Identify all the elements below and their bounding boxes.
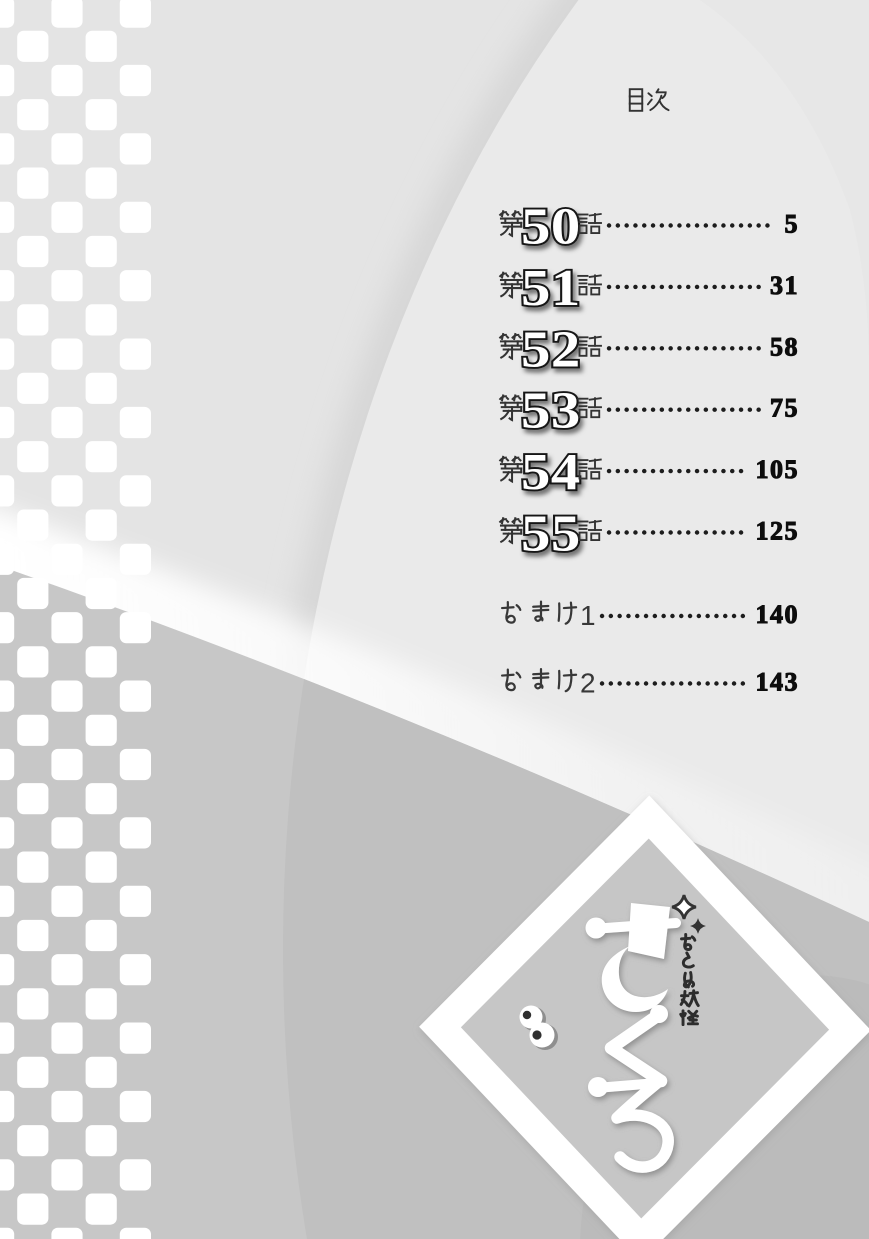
svg-text:52: 52	[521, 321, 581, 378]
svg-text:50: 50	[521, 199, 581, 256]
svg-text:55: 55	[521, 506, 581, 563]
svg-text:53: 53	[521, 383, 581, 440]
svg-text:143: 143	[756, 668, 800, 697]
svg-text:75: 75	[770, 394, 799, 423]
svg-text:51: 51	[521, 260, 581, 317]
svg-text:31: 31	[770, 271, 799, 300]
svg-text:1: 1	[580, 600, 596, 631]
svg-text:2: 2	[580, 668, 596, 699]
svg-text:54: 54	[521, 444, 581, 501]
svg-text:140: 140	[756, 600, 800, 629]
svg-text:105: 105	[756, 455, 800, 484]
svg-text:58: 58	[770, 332, 799, 361]
svg-text:125: 125	[756, 517, 800, 546]
svg-text:5: 5	[785, 210, 800, 239]
